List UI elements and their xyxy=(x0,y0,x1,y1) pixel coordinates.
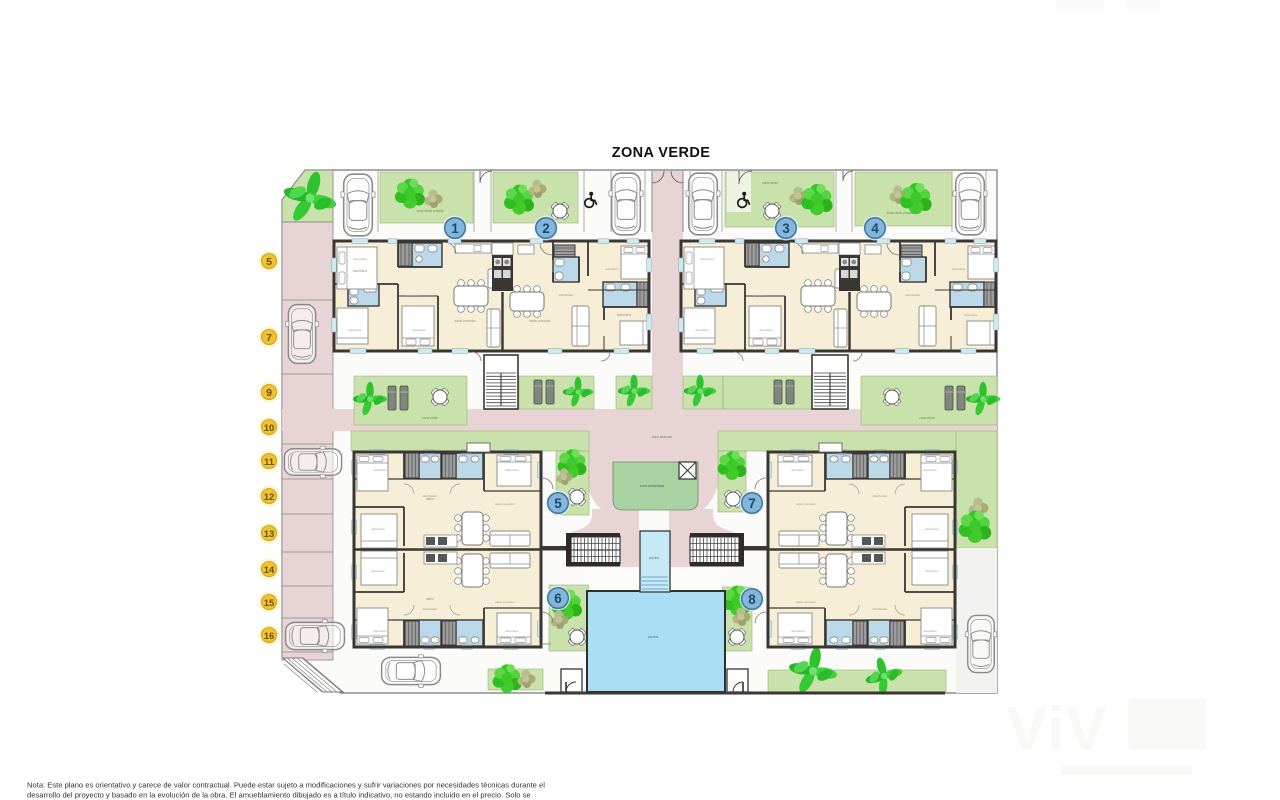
svg-text:9: 9 xyxy=(266,387,272,399)
svg-text:piscina: piscina xyxy=(648,635,659,639)
svg-text:ViV: ViV xyxy=(1006,695,1108,764)
svg-text:salón: salón xyxy=(426,597,434,601)
svg-text:3: 3 xyxy=(782,221,790,236)
svg-text:dormitorio: dormitorio xyxy=(373,468,387,472)
svg-text:salón comedor: salón comedor xyxy=(455,319,477,323)
svg-text:dormitorio: dormitorio xyxy=(371,569,385,573)
svg-text:8: 8 xyxy=(748,592,756,607)
svg-text:dormitorio: dormitorio xyxy=(700,257,714,261)
svg-text:distribuidor: distribuidor xyxy=(873,494,888,498)
svg-text:dormitorio: dormitorio xyxy=(617,313,631,317)
svg-text:15: 15 xyxy=(264,598,275,609)
svg-text:distribuidor: distribuidor xyxy=(423,494,438,498)
svg-text:dormitorio: dormitorio xyxy=(791,468,805,472)
svg-text:distribuidor: distribuidor xyxy=(405,294,420,298)
svg-text:dormitorio: dormitorio xyxy=(348,328,362,332)
svg-text:13: 13 xyxy=(264,529,275,540)
svg-text:dormitorio: dormitorio xyxy=(695,328,709,332)
svg-text:salón comedor: salón comedor xyxy=(796,600,816,604)
svg-text:distribuidor: distribuidor xyxy=(873,607,888,611)
svg-text:5: 5 xyxy=(554,496,562,511)
svg-text:dormitorio: dormitorio xyxy=(964,313,978,317)
svg-text:11: 11 xyxy=(264,457,275,468)
svg-text:dormitorio: dormitorio xyxy=(923,468,937,472)
svg-text:6: 6 xyxy=(554,591,562,606)
svg-text:distribuidor: distribuidor xyxy=(752,294,767,298)
svg-text:5: 5 xyxy=(266,256,272,268)
svg-text:16: 16 xyxy=(264,631,275,642)
svg-text:dormitorio: dormitorio xyxy=(605,267,619,271)
svg-text:z. verde: z. verde xyxy=(539,642,551,646)
svg-text:7: 7 xyxy=(748,496,756,511)
svg-text:distribuidor: distribuidor xyxy=(906,293,921,297)
svg-text:12: 12 xyxy=(264,492,275,503)
svg-text:ZONA VERDE: ZONA VERDE xyxy=(612,145,711,161)
svg-text:dormitorio: dormitorio xyxy=(952,267,966,271)
svg-text:desarrollo del proyecto y basa: desarrollo del proyecto y basado en la e… xyxy=(27,791,531,800)
svg-text:dormitorio: dormitorio xyxy=(505,629,519,633)
svg-text:dormitorio: dormitorio xyxy=(923,629,937,633)
svg-text:2: 2 xyxy=(542,221,550,236)
svg-text:distribuidor: distribuidor xyxy=(423,607,438,611)
svg-text:dormitorio: dormitorio xyxy=(925,527,939,531)
svg-text:zona verde privada: zona verde privada xyxy=(886,211,913,215)
svg-text:dormitorio: dormitorio xyxy=(759,328,773,332)
svg-text:dormitorio: dormitorio xyxy=(505,468,519,472)
svg-text:14: 14 xyxy=(264,565,275,576)
svg-text:salón comedor: salón comedor xyxy=(495,502,515,506)
svg-text:salón comedor: salón comedor xyxy=(495,600,515,604)
svg-text:1: 1 xyxy=(451,221,459,236)
svg-text:distribuidor: distribuidor xyxy=(559,293,574,297)
svg-text:7: 7 xyxy=(266,332,272,344)
svg-text:piscina: piscina xyxy=(649,556,659,560)
svg-text:dormitorio: dormitorio xyxy=(373,629,387,633)
svg-text:zona comunitaria: zona comunitaria xyxy=(640,484,665,488)
svg-text:salón comedor: salón comedor xyxy=(796,502,816,506)
svg-text:Nota: Este plano es orientativ: Nota: Este plano es orientativo y carece… xyxy=(27,781,545,790)
svg-text:dormitorio: dormitorio xyxy=(353,257,367,261)
svg-text:zona verde: zona verde xyxy=(422,416,438,420)
svg-text:4: 4 xyxy=(871,221,879,236)
svg-text:dormitorio: dormitorio xyxy=(925,569,939,573)
svg-text:salón comedor: salón comedor xyxy=(530,319,552,323)
svg-text:10: 10 xyxy=(264,423,275,434)
svg-text:dormitorio: dormitorio xyxy=(353,269,367,273)
svg-text:zona verde privada: zona verde privada xyxy=(416,209,443,213)
svg-text:dormitorio: dormitorio xyxy=(371,527,385,531)
svg-text:zona verde: zona verde xyxy=(762,181,778,185)
svg-text:zona verde: zona verde xyxy=(919,416,935,420)
svg-text:dormitorio: dormitorio xyxy=(412,328,426,332)
svg-text:zona peatonal: zona peatonal xyxy=(652,435,672,439)
svg-text:dormitorio: dormitorio xyxy=(791,629,805,633)
